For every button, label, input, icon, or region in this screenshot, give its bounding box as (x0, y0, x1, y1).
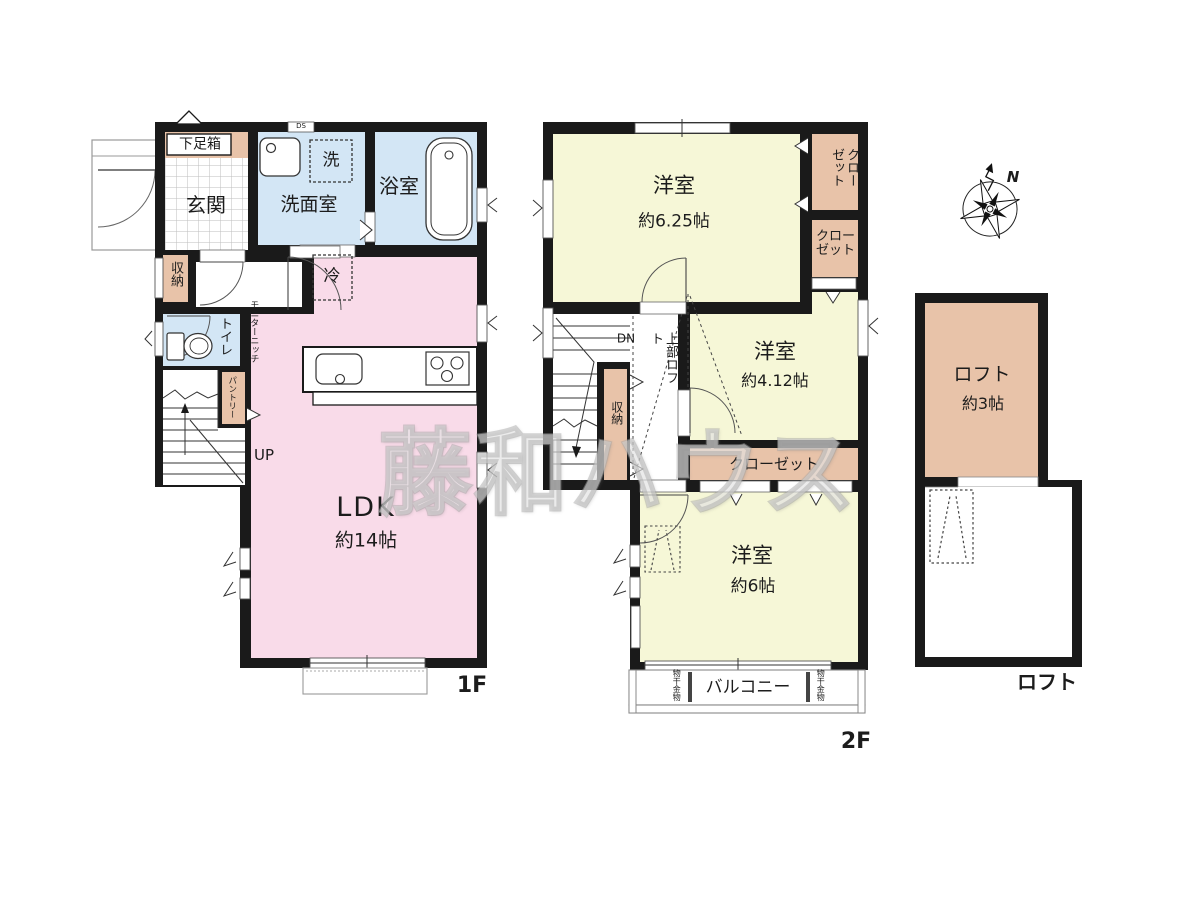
label-laundry: 洗 (323, 152, 340, 171)
label-room-a: 洋室 (653, 174, 695, 197)
toilet-icon (167, 333, 212, 360)
vent-mark (176, 111, 202, 124)
ldk-floor (251, 257, 477, 658)
label-closet-mid: クローゼット (813, 230, 858, 259)
label-washroom: 洗面室 (280, 195, 337, 216)
label-room-b: 洋室 (754, 340, 796, 363)
label-upper-loft: 上部ロフト (645, 332, 677, 390)
label-storage-2f: 収納 (609, 401, 623, 441)
label-ds: DS (296, 123, 306, 131)
label-pantry: パントリー (226, 376, 236, 422)
label-monitor-niche: モニターニッチ (248, 300, 258, 380)
floorplan-canvas: 下足箱 玄関 洗面室 洗 DS 浴室 収納 トイレ パントリー モニターニッチ … (0, 0, 1200, 900)
label-balcony: バルコニー (706, 679, 791, 698)
label-room-a-size: 約6.25帖 (638, 213, 710, 232)
label-compass-north: N (1007, 169, 1020, 186)
label-storage-1f: 収納 (167, 261, 182, 299)
kitchen-sink-icon (316, 354, 362, 384)
f2-plan (533, 119, 878, 713)
label-room-b-size: 約4.12帖 (741, 372, 809, 390)
entrance-porch (92, 140, 157, 250)
label-drying-right: 物干金物 (816, 669, 825, 711)
floorplan-drawing (0, 0, 1200, 900)
label-entrance: 玄関 (186, 194, 226, 216)
label-dn: DN (617, 332, 635, 345)
stove-icon (426, 352, 469, 385)
label-2f: 2F (841, 730, 871, 754)
label-ldk-size: 約14帖 (335, 531, 397, 552)
label-closet-top: クローゼット (814, 148, 858, 196)
terrace (303, 668, 427, 694)
label-drying-left: 物干金物 (672, 669, 681, 711)
label-fridge: 冷 (324, 268, 341, 287)
bathtub-icon (426, 138, 472, 240)
label-loft-room: ロフト (953, 365, 1010, 386)
label-bath: 浴室 (379, 175, 419, 197)
label-ldk: LDK (336, 493, 396, 523)
label-shoe-box: 下足箱 (179, 137, 221, 152)
drying-bar-right (806, 672, 810, 702)
loft-plan (915, 293, 1082, 667)
kitchen-counter (303, 347, 477, 405)
label-loft-floor: ロフト (1017, 671, 1077, 693)
label-up: UP (254, 447, 274, 464)
label-room-c: 洋室 (731, 544, 773, 567)
label-loft-size: 約3帖 (962, 395, 1004, 413)
room-412-floor (690, 292, 858, 440)
label-toilet: トイレ (216, 317, 231, 367)
drying-bar-left (688, 672, 692, 702)
sink-icon (260, 138, 300, 176)
label-closet-low: クローゼット (729, 456, 819, 473)
label-1f: 1F (457, 674, 487, 698)
loft-room-floor (925, 303, 1038, 477)
label-room-c-size: 約6帖 (731, 578, 776, 597)
